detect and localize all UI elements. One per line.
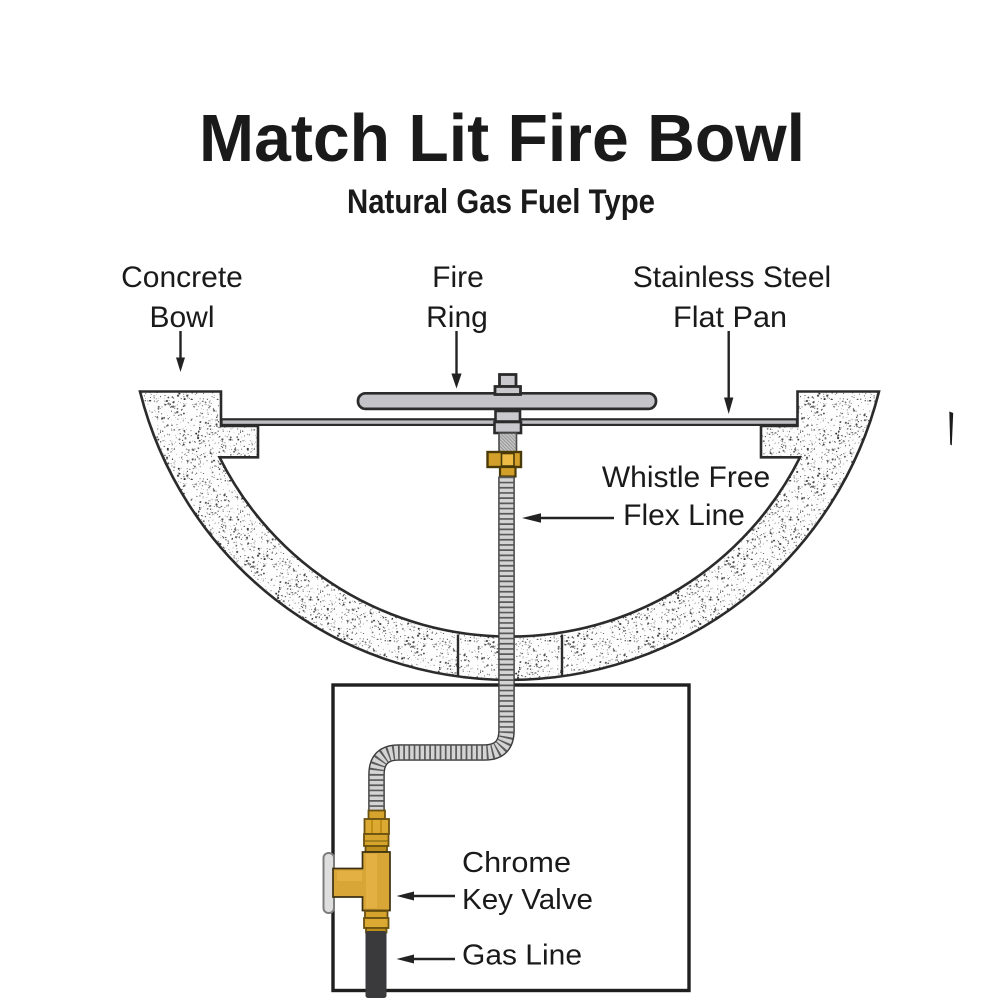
svg-text:Stainless Steel: Stainless Steel [633,261,831,294]
svg-text:Match Lit Fire Bowl: Match Lit Fire Bowl [199,101,805,176]
svg-text:Flex Line: Flex Line [623,499,745,532]
svg-text:Bowl: Bowl [149,301,214,334]
svg-text:Concrete: Concrete [121,261,243,294]
svg-text:Ring: Ring [426,301,488,334]
svg-text:Key Valve: Key Valve [462,884,593,916]
svg-text:Natural Gas Fuel Type: Natural Gas Fuel Type [347,183,655,221]
svg-text:Chrome: Chrome [462,847,571,879]
svg-text:Flat Pan: Flat Pan [673,301,787,334]
svg-text:Whistle Free: Whistle Free [602,461,770,494]
svg-text:Gas Line: Gas Line [462,940,582,972]
svg-text:Fire: Fire [432,261,484,294]
